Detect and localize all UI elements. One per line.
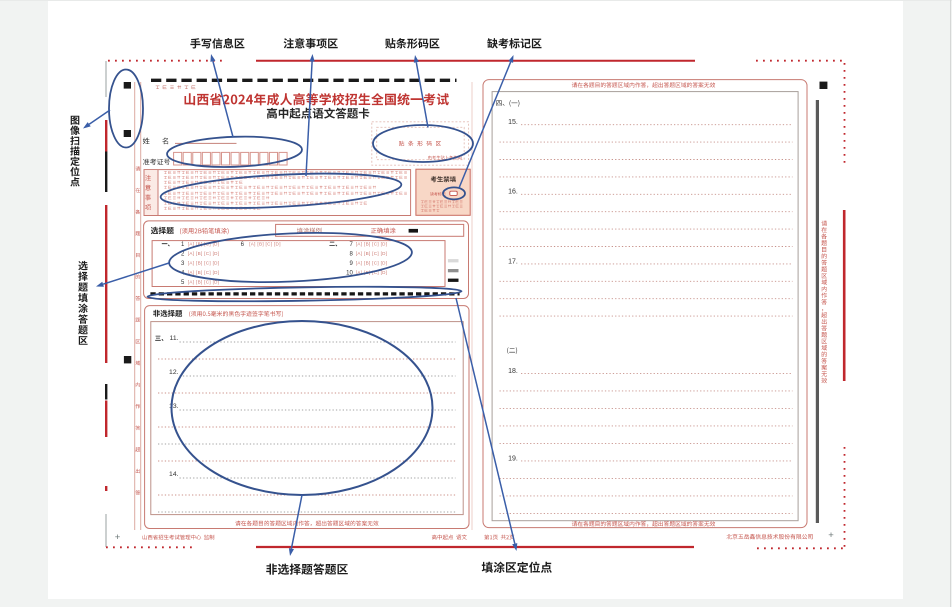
svg-text:[A] [B] [C] [D]: [A] [B] [C] [D] — [188, 260, 220, 265]
svg-text:15.: 15. — [508, 119, 518, 126]
svg-text:[A] [B] [C] [D]: [A] [B] [C] [D] — [249, 241, 281, 246]
svg-text:17.: 17. — [508, 258, 518, 265]
svg-text:16.: 16. — [508, 189, 518, 196]
svg-text:12.: 12. — [169, 369, 179, 376]
svg-text:19.: 19. — [508, 455, 518, 462]
svg-text:[A] [B] [C] [D]: [A] [B] [C] [D] — [356, 260, 388, 265]
svg-text:[A] [B] [C] [D]: [A] [B] [C] [D] — [356, 251, 388, 256]
svg-text:14.: 14. — [169, 471, 179, 478]
svg-text:11.: 11. — [170, 335, 179, 342]
svg-text:+: + — [828, 530, 834, 541]
svg-text:18.: 18. — [508, 368, 518, 375]
svg-text:+: + — [115, 532, 121, 543]
svg-text:[A] [B] [C] [D]: [A] [B] [C] [D] — [356, 241, 388, 246]
svg-text:[A] [B] [C] [D]: [A] [B] [C] [D] — [188, 251, 220, 256]
svg-text:13.: 13. — [169, 403, 179, 410]
svg-text:[A] [B] [C] [D]: [A] [B] [C] [D] — [188, 270, 220, 275]
